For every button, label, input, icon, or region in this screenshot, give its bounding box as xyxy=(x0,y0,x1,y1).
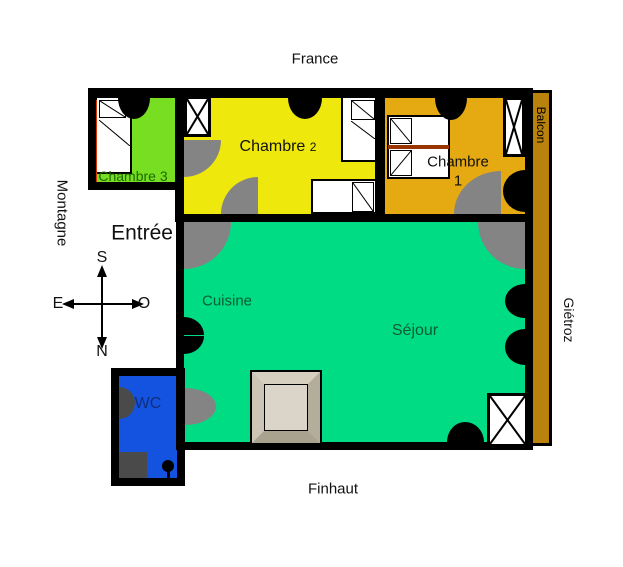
compass: S N E O xyxy=(40,248,155,360)
compass-label-east: E xyxy=(53,295,64,313)
wall-chambre3-chambre2 xyxy=(175,88,184,222)
label-wc: WC xyxy=(135,396,162,412)
label-sejour: Séjour xyxy=(392,323,438,339)
wc-shower xyxy=(119,452,147,478)
shutter-leaf xyxy=(134,98,150,119)
shutter-chambre3-top xyxy=(118,98,150,119)
pillow xyxy=(351,100,375,120)
wall-top xyxy=(88,88,533,98)
bed-chambre2-horizontal xyxy=(311,179,380,214)
compass-label-south: S xyxy=(97,249,108,267)
shutter-leaf xyxy=(505,329,525,347)
shutter-leaf xyxy=(503,191,525,212)
wall-bottom xyxy=(176,442,533,450)
bed-divider xyxy=(388,145,449,149)
shutter-leaf xyxy=(118,98,134,119)
compass-label-north: N xyxy=(96,343,108,361)
shutter-leaf xyxy=(503,170,525,191)
wall-mid xyxy=(175,214,533,222)
room-name: Chambre xyxy=(240,138,306,155)
compass-label-west: O xyxy=(138,295,150,313)
label-balcon: Balcon xyxy=(535,107,547,144)
pillow xyxy=(352,182,374,212)
window-chambre2 xyxy=(184,96,211,137)
shutter-leaf xyxy=(505,284,525,301)
shutter-sejour-bottom xyxy=(447,422,484,442)
shutter-leaf xyxy=(435,98,451,120)
wall-living-left xyxy=(176,214,184,450)
pillow xyxy=(390,150,412,176)
room-number: 2 xyxy=(310,140,317,154)
shutter-leaf xyxy=(505,301,525,318)
label-chambre1-name: Chambre xyxy=(427,155,489,170)
shutter-leaf xyxy=(288,98,305,119)
shutter-leaf xyxy=(465,422,484,442)
shutter-cuisine-left xyxy=(184,317,204,354)
shutter-leaf xyxy=(184,336,204,354)
label-chambre3: Chambre 3 xyxy=(98,169,167,183)
wc-toilet xyxy=(162,460,175,480)
label-cuisine: Cuisine xyxy=(202,294,252,309)
shutter-leaf xyxy=(505,347,525,365)
bed-chambre2-vertical xyxy=(341,96,377,162)
window-sejour xyxy=(487,393,528,447)
label-chambre2: Chambre 2 xyxy=(240,139,317,155)
wall-left-upper xyxy=(88,88,96,190)
floor-plan: S N E O France Montagne Giétroz Finhaut … xyxy=(0,0,623,567)
stove xyxy=(250,370,322,445)
living-floor xyxy=(184,222,525,443)
shutter-leaf xyxy=(184,317,204,335)
balcony xyxy=(533,90,552,446)
label-chambre1-number: 1 xyxy=(454,174,462,189)
shutter-chambre1-right xyxy=(503,170,525,212)
window-chambre1 xyxy=(503,97,525,157)
shutter-sejour-right-1 xyxy=(505,284,525,318)
label-entree: Entrée xyxy=(111,223,173,244)
wall-chambre2-chambre1 xyxy=(375,88,385,222)
pillow xyxy=(390,118,412,144)
label-france: France xyxy=(292,52,339,67)
shutter-leaf xyxy=(451,98,467,120)
label-gietroz: Giétroz xyxy=(562,297,576,342)
label-montagne: Montagne xyxy=(55,180,70,247)
shutter-chambre2-top xyxy=(288,98,322,119)
shutter-leaf xyxy=(447,422,465,442)
shutter-sejour-right-2 xyxy=(505,329,525,365)
shutter-leaf xyxy=(305,98,322,119)
label-finhaut: Finhaut xyxy=(308,482,358,497)
shutter-chambre1-top xyxy=(435,98,467,120)
